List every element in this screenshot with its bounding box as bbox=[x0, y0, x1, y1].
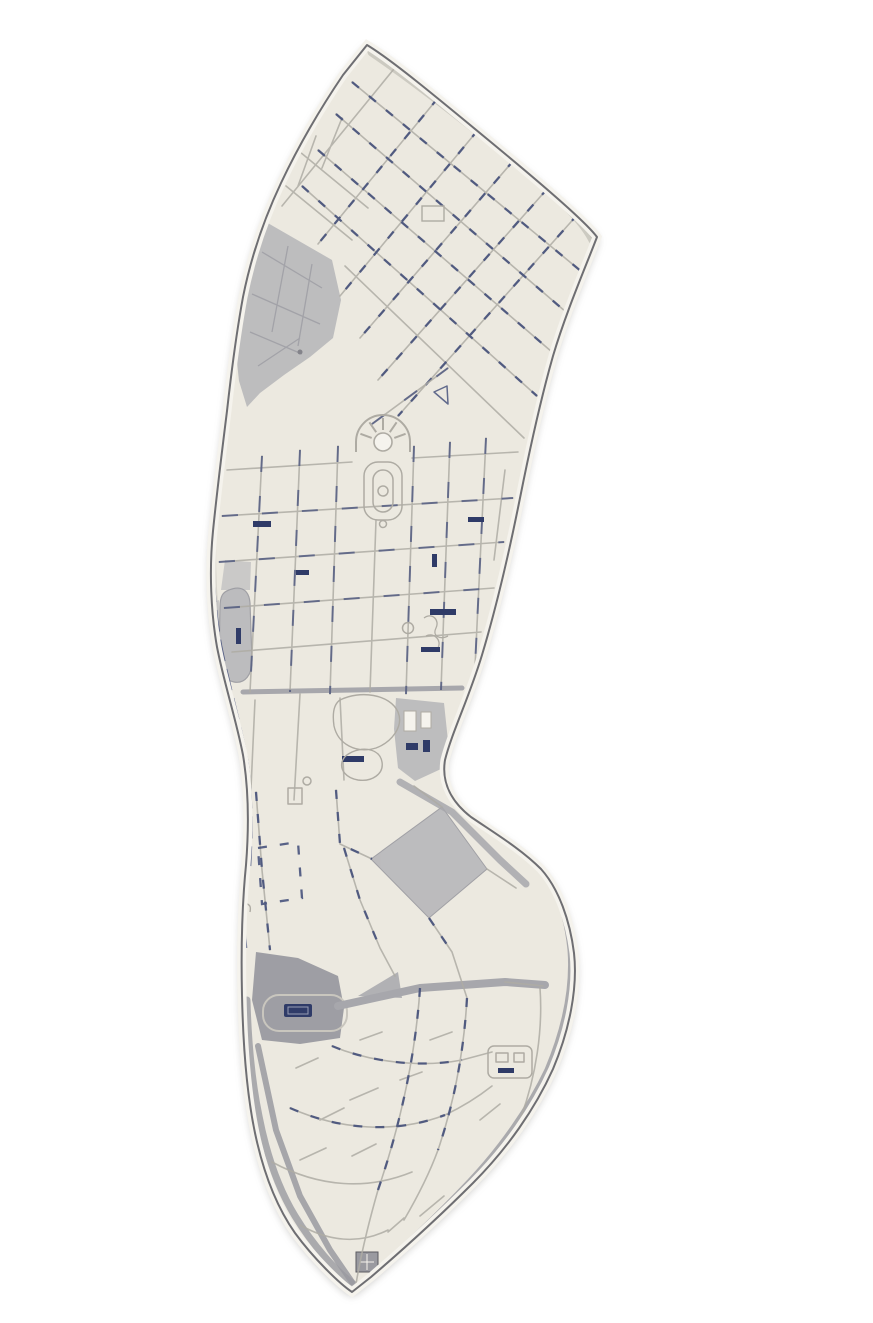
oval-park-north-patch bbox=[221, 560, 251, 590]
screenshot-canvas bbox=[0, 0, 873, 1323]
navy-bar-7 bbox=[432, 554, 437, 567]
citadel-dot bbox=[298, 350, 303, 355]
navy-bar-1 bbox=[430, 609, 456, 615]
waist-building-a bbox=[404, 711, 416, 731]
navy-bar-4 bbox=[296, 570, 309, 575]
waist-navy-building-a bbox=[406, 743, 418, 750]
se-complex-navy bbox=[498, 1068, 514, 1073]
navy-bar-3 bbox=[253, 521, 271, 527]
rotunda-center bbox=[374, 433, 392, 451]
navy-bar-2 bbox=[421, 647, 440, 652]
waist-building-b bbox=[421, 712, 431, 728]
city-map-photo bbox=[0, 0, 873, 1323]
navy-bar-5 bbox=[236, 628, 241, 644]
waist-navy-building-b bbox=[423, 740, 430, 752]
navy-bar-6 bbox=[468, 517, 484, 522]
